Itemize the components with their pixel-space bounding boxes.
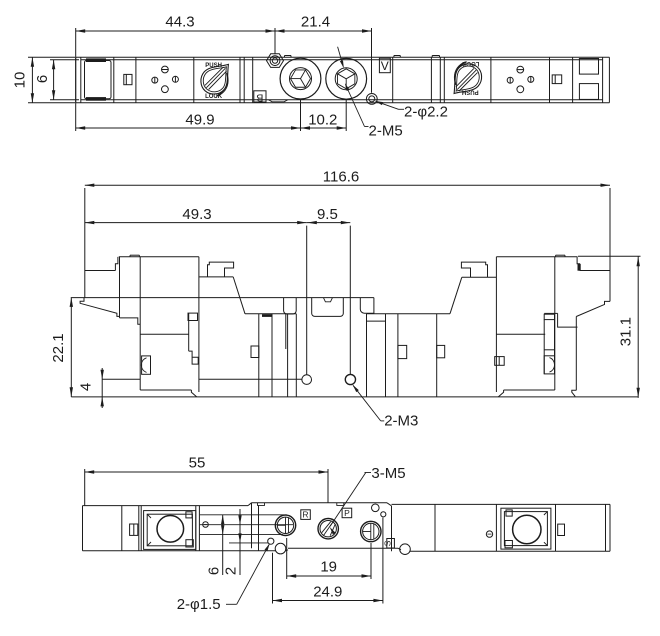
svg-text:PUSH: PUSH (205, 63, 222, 69)
svg-text:B: B (256, 91, 263, 103)
svg-text:3-M5: 3-M5 (371, 465, 405, 482)
svg-text:2-φ1.5: 2-φ1.5 (177, 596, 221, 613)
svg-text:2-φ2.2: 2-φ2.2 (404, 104, 448, 121)
svg-text:31.1: 31.1 (618, 317, 635, 346)
svg-text:49.9: 49.9 (185, 111, 214, 128)
svg-text:10.2: 10.2 (308, 111, 337, 128)
svg-text:55: 55 (189, 455, 206, 472)
svg-text:PUSH: PUSH (462, 89, 479, 95)
svg-text:P: P (344, 508, 350, 518)
svg-text:LOCK: LOCK (462, 60, 480, 66)
svg-text:9.5: 9.5 (317, 206, 338, 223)
svg-text:R: R (302, 510, 308, 520)
svg-text:49.3: 49.3 (182, 206, 211, 223)
svg-text:10: 10 (12, 72, 29, 89)
svg-text:6: 6 (205, 567, 222, 575)
svg-text:2-M3: 2-M3 (384, 413, 418, 430)
svg-text:4: 4 (78, 383, 95, 391)
svg-text:44.3: 44.3 (165, 14, 194, 31)
svg-text:6: 6 (34, 75, 51, 83)
svg-text:21.4: 21.4 (301, 14, 330, 31)
svg-text:LOCK: LOCK (205, 94, 223, 100)
svg-text:24.9: 24.9 (313, 583, 342, 600)
svg-text:S: S (383, 540, 393, 546)
svg-text:2: 2 (223, 567, 240, 575)
svg-text:2-M5: 2-M5 (369, 122, 403, 139)
svg-text:19: 19 (320, 559, 337, 576)
svg-text:V: V (381, 59, 389, 73)
svg-text:22.1: 22.1 (50, 333, 67, 362)
svg-text:116.6: 116.6 (323, 169, 359, 186)
